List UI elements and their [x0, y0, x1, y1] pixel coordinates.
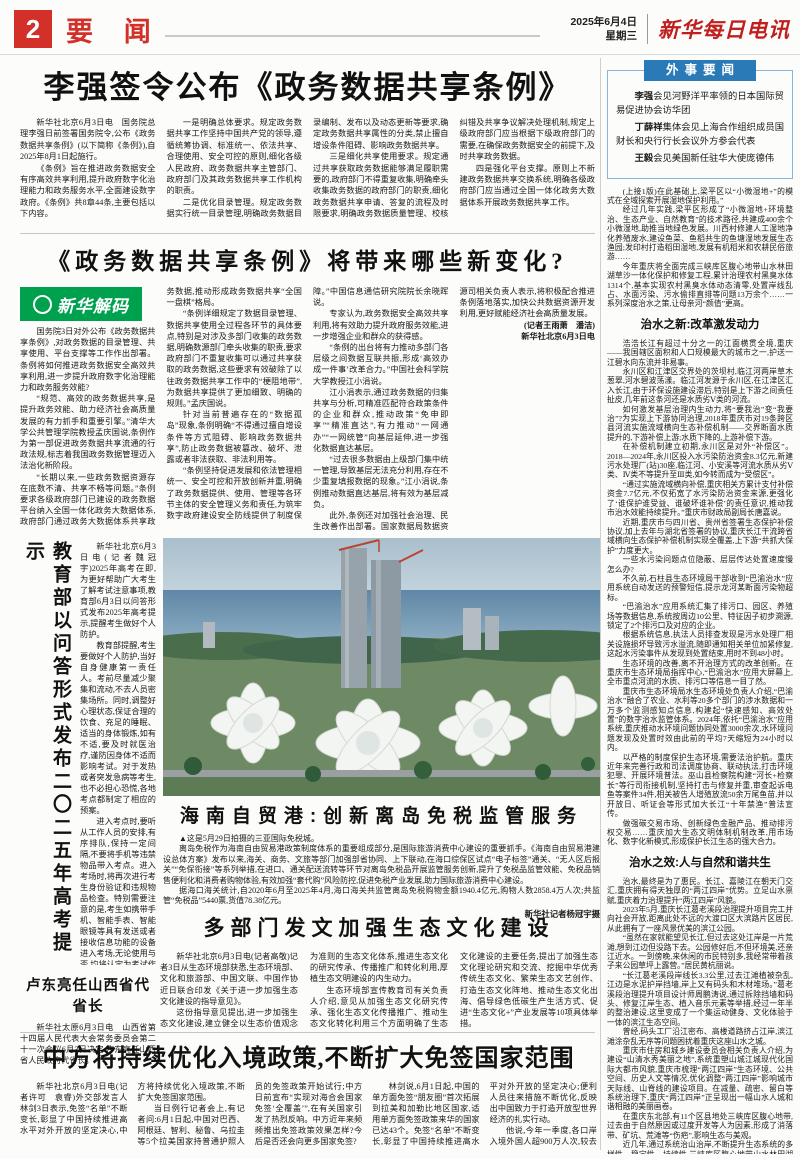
- paragraph: 专家认为,政务数据安全高效共享利用,将有效助力提升政府服务效能,进一步增强企业和…: [313, 308, 449, 342]
- eco-body: 新华社北京6月3日电(记者高敬)记者3日从生态环境部获悉,生态环境部、文化和旅游…: [160, 951, 598, 1035]
- foreign-affairs-box: 外事要闻 李强会见河野洋平率领的日本国际贸易促进协会访华团 丁薛祥集体会见上海合…: [607, 70, 793, 179]
- article2-byline: (记者王雨萧 潘洁): [460, 320, 596, 331]
- masthead: 新华每日电讯: [658, 14, 790, 44]
- right-column: 外事要闻 李强会见河野洋平率领的日本国际贸易促进协会访华团 丁薛祥集体会见上海合…: [607, 60, 793, 1154]
- paragraph: 四是强化平台支撑。原则上不新建政务数据共享交换系统,明确各级政府部门应当通过全国…: [460, 163, 596, 209]
- header-right: 2025年6月4日 星期三 新华每日电讯: [570, 14, 800, 44]
- paragraph: 离岛免税作为海南自由贸易港政策制度体系的重要组成部分,是国际旅游消费中心建设的重…: [163, 844, 600, 886]
- paragraph: “过去很多数据由上级部门集中统一管理,导致基层无法充分利用,存在不少重复填报数据…: [313, 454, 449, 510]
- decode-logo-text: 新华解码: [57, 292, 129, 317]
- foreign-item: 丁薛祥集体会见上海合作组织成员国财长和央行行长会议外方参会代表: [616, 121, 784, 149]
- paragraph: “虽然在家就能望见长江,但过去这处江岸是一片荒滩,想到江边但没路下去。公园修好后…: [607, 933, 793, 971]
- paragraph: 一是明确总体要求。规定政务数据共享工作坚持中国共产党的领导,遵循统筹协调、标准统…: [167, 117, 303, 197]
- visa-headline: 中方将持续优化入境政策,不断扩大免签国家范围: [20, 1038, 597, 1073]
- paragraph: “通过实施流域横向补偿,重庆相关方累计支付补偿资金7.7亿元,不仅拓宽了水污染防…: [607, 480, 793, 518]
- paragraph: (上接1版)在此基础上,梁平区以“小微湿地+”的模式在全域探索开展湿地保护利用。…: [607, 187, 793, 206]
- paragraph: 经过几年实践,梁平区形成了“小微湿地+环境整治、生态产业、自然教育”的技术路径,…: [607, 205, 793, 261]
- foreign-item-lead: 王毅: [635, 153, 654, 163]
- section-rule: [20, 233, 595, 234]
- xinhua-decode-logo: 新华解码: [20, 287, 142, 321]
- article-chongqing-water-continued: (上接1版)在此基础上,梁平区以“小微湿地+”的模式在全域探索开展湿地保护利用。…: [607, 187, 793, 1155]
- foreign-item-lead: 李强: [635, 91, 654, 101]
- article-visa-free-policy: 中方将持续优化入境政策,不断扩大免签国家范围 新华社北京6月3日电(记者许可 袁…: [20, 1038, 597, 1151]
- header-left: 2 要 闻: [0, 10, 570, 49]
- water-subhead-2: 治水之效:人与自然和谐共生: [607, 854, 793, 870]
- article2-headline: 《政务数据共享条例》将带来哪些新变化?: [20, 242, 595, 276]
- decode-ring-icon: [33, 295, 52, 314]
- paragraph: “长江葛老溪段岸线长3.3公里,过去江滩植被杂乱,江边是水泥护岸挡墙,岸上又有码…: [607, 971, 793, 1027]
- weekday-text: 星期三: [570, 29, 637, 43]
- foreign-affairs-title: 外事要闻: [644, 60, 756, 81]
- paragraph: 浩浩长江有超过十分之一的江面横贯全境,重庆——我国辖区面积和人口规模最大的城市之…: [607, 339, 793, 367]
- header-rule: [165, 35, 541, 37]
- water-intro: (上接1版)在此基础上,梁平区以“小微湿地+”的模式在全域探索开展湿地保护利用。…: [607, 187, 793, 309]
- paragraph: 教育部提醒,考生要做好个人防护,当好自身健康第一责任人。考前尽量减少聚集和流动,…: [80, 640, 156, 816]
- paragraph: 针对当前普遍存在的“数据孤岛”现象,条例明确“不得通过擅自增设条件等方式阻碍、影…: [167, 409, 303, 465]
- article-eco-culture: 多部门发文加强生态文化建设 新华社北京6月3日电(记者高敬)记者3日从生态环境部…: [160, 908, 598, 1035]
- date-block: 2025年6月4日 星期三: [570, 15, 637, 43]
- paragraph: 《条例》旨在推进政务数据安全有序高效共享利用,提升政府数字化治理能力和政务服务水…: [20, 163, 156, 220]
- foreign-item-lead: 丁薛祥: [635, 122, 663, 132]
- water-section-2: 治水,最终是为了惠民。长江、嘉陵江在朝天门交汇,重庆拥有得天独厚的“两江四岸”优…: [607, 877, 793, 1154]
- paragraph: 据海口海关统计,自2020年6月至2025年4月,海口海关共监管离岛免税购物金额…: [163, 886, 600, 907]
- paragraph: 永川区和江津区交界处的茨坝村,临江河两岸草木葱翠,河水碧波荡漾。临江河发源于永川…: [607, 367, 793, 405]
- page-header: 2 要 闻 2025年6月4日 星期三 新华每日电讯: [0, 6, 800, 52]
- article1-headline: 李强签令公布《政务数据共享条例》: [20, 62, 595, 107]
- article2-dateline: 新华社北京6月3日电: [460, 331, 596, 342]
- paragraph: “条例详细规定了数据目录管理、数据共享使用全过程各环节的具体要点,特别是对涉及多…: [167, 308, 303, 409]
- education-body: 新华社北京6月3日电(记者魏冠宇)2025年高考在即,为更好帮助广大考生了解考试…: [80, 541, 156, 965]
- paragraph: 今年重庆将全面完成三峡库区腹心地带山水林田湖草沙一体化保护和修复工程,累计治理农…: [607, 262, 793, 309]
- paragraph: 在补偿机制建立初期,永川区是对外“补偿区”。2018—2024年,永川区投入水污…: [607, 442, 793, 480]
- photo-caption: 海南自贸港:创新离岛免税监管服务 ▲这是5月29日拍摄的三亚国际免税城。离岛免税…: [163, 801, 600, 920]
- foreign-item-rest: 会见美国新任驻华大使庞德伟: [653, 154, 774, 164]
- header-divider: [647, 14, 648, 44]
- caption-headline: 海南自贸港:创新离岛免税监管服务: [163, 801, 600, 828]
- water-section-1: 浩浩长江有超过十分之一的江面横贯全境,重庆——我国辖区面积和人口规模最大的城市之…: [607, 339, 793, 847]
- paragraph: 重庆市住房和城乡建设委员会相关负责人介绍,为建设“山清水秀美丽之地”,系统重塑山…: [607, 1046, 793, 1112]
- paragraph: 以严格的制度保护生态环境,需要法治护航。重庆近年来完善行政和司法调度协商、联动执…: [607, 753, 793, 819]
- paragraph: 新华社北京6月3日电(记者魏冠宇)2025年高考在即,为更好帮助广大考生了解考试…: [80, 541, 156, 640]
- caption-text: ▲这是5月29日拍摄的三亚国际免税城。离岛免税作为海南自由贸易港政策制度体系的重…: [163, 834, 600, 907]
- paragraph: 新华社北京6月3日电 国务院总理李强日前签署国务院令,公布《政务数据共享条例》(…: [20, 117, 156, 163]
- paragraph: 在重庆东北部,有11个区县地处三峡库区腹心地带,过去由于自然原因或过度开发等人为…: [607, 1112, 793, 1140]
- article1-body: 新华社北京6月3日电 国务院总理李强日前签署国务院令,公布《政务数据共享条例》(…: [20, 117, 595, 229]
- article-data-sharing-decree: 李强签令公布《政务数据共享条例》 新华社北京6月3日电 国务院总理李强日前签署国…: [20, 60, 595, 229]
- photo-sanya-duty-free-city: [163, 538, 600, 796]
- paragraph: 做强碳交易市场、创新绿色金融产品、推动排污权交易……重庆加大生态文明体制机制改革…: [607, 819, 793, 847]
- paragraph: 曾经,码头工厂沿江密布、高楼道路挤占江岸,滨江滩涂杂乱无序等问题困扰着重庆这座山…: [607, 1027, 793, 1046]
- paragraph: ▲这是5月29日拍摄的三亚国际免税城。: [163, 834, 600, 844]
- paragraph: 根据系统信息,执法人员排查发现是污水处理厂相关设施损坏导致污水溢流,随即通知相关…: [607, 630, 793, 658]
- column-divider: [600, 58, 601, 1150]
- paragraph: 2023年5月,重庆长江葛老溪段治理提升项目完工并向社会开放,距离此处不远的大渡…: [607, 905, 793, 933]
- paragraph: “条例的出台将有力推动多部门各层级之间数据互联共振,形成‘高效办成一件事’改革合…: [313, 342, 449, 387]
- paragraph: 近几年,通过系统治山治岸,不断提升生态系统的多样性、稳定性、持续性,三峡库区腹心…: [607, 1140, 793, 1154]
- foreign-item: 李强会见河野洋平率领的日本国际贸易促进协会访华团: [616, 90, 784, 118]
- photo-illustration: [163, 538, 600, 796]
- shanxi-headline: 卢东亮任山西省代省长: [20, 974, 156, 1016]
- page-number-badge: 2: [14, 10, 52, 48]
- paragraph: 治水,最终是为了惠民。长江、嘉陵江在朝天门交汇,重庆拥有得天独厚的“两江四岸”优…: [607, 877, 793, 905]
- article-gaokao-tips: 教育部以问答形式发布二〇二五年高考提示 新华社北京6月3日电(记者魏冠宇)202…: [20, 541, 156, 965]
- article-data-sharing-changes: 《政务数据共享条例》将带来哪些新变化? 新华解码 国务院3日对外公布《政务数据共…: [20, 240, 595, 538]
- paragraph: 一些水污染问题点位隐蔽、层层传达处置速度慢怎么办?: [607, 555, 793, 574]
- education-vertical-headline: 教育部以问答形式发布二〇二五年高考提示: [20, 541, 74, 965]
- paragraph: 如何激发基层治理内生动力,将“要我治”变“我要治”?为实现上下游协同治理,201…: [607, 405, 793, 443]
- section-title: 要 闻: [66, 10, 163, 49]
- paragraph: 近期,重庆市与四川省、贵州省签署生态保护补偿协议,加上去年与湖北省签署的协议,重…: [607, 518, 793, 556]
- eco-headline: 多部门发文加强生态文化建设: [160, 912, 598, 942]
- article2-body: 新华解码 国务院3日对外公布《政务数据共享条例》,对政务数据的目录管理、共享使用…: [20, 286, 595, 538]
- paragraph: “巴渝治水”应用系统汇集了排污口、园区、养殖场等数据信息,系统按周边10公里、特…: [607, 602, 793, 630]
- paragraph: 生态环境的改善,离不开治理方式的改革创新。在重庆市生态环境局指挥中心,“巴渝治水…: [607, 659, 793, 687]
- visa-body: 新华社北京6月3日电(记者许可 袁睿)外交部发言人林剑3日表示,免签“名单”不断…: [20, 1081, 597, 1151]
- paragraph: 重庆市生态环境局水生态环境处负责人介绍,“巴渝治水”融合了农业、水利等20多个部…: [607, 687, 793, 753]
- paragraph: 江小涓表示,通过政务数据的归集共享与分析,可精准匹配符合政策条件的企业和群众,推…: [313, 387, 449, 454]
- water-subhead-1: 治水之新:改革激发动力: [607, 316, 793, 332]
- header-bottom-rule: [0, 54, 800, 55]
- paragraph: 不久前,石柱县生态环境局干部收到“巴渝治水”应用系统自动发送的预警短信,提示龙河…: [607, 574, 793, 602]
- date-text: 2025年6月4日: [570, 15, 637, 29]
- paragraph: 新华社北京6月3日电(记者高敬)记者3日从生态环境部获悉,生态环境部、文化和旅游…: [160, 951, 298, 1007]
- paragraph: “规范、高效的政务数据共享,是提升政务效能、助力经济社会高质量发展的有力抓手和重…: [20, 393, 156, 471]
- paragraph: 进入考点时,要听从工作人员的安排,有序排队,保持一定间隔,不要将手机等违禁物品带…: [80, 816, 156, 965]
- foreign-item: 王毅会见美国新任驻华大使庞德伟: [616, 152, 784, 167]
